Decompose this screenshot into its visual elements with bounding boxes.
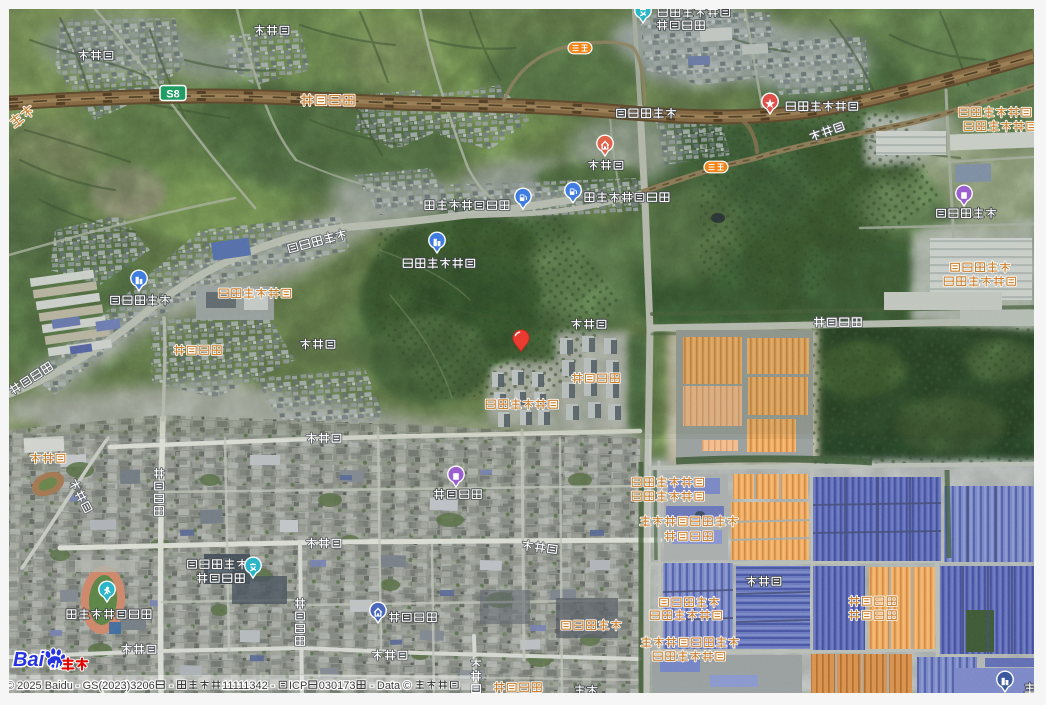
svg-text:- Data ©: - Data © (367, 680, 414, 692)
svg-text:ICP: ICP (289, 680, 307, 692)
svg-text:11111342 -: 11111342 - (222, 680, 277, 692)
svg-text:S8: S8 (166, 88, 179, 100)
svg-text:© 2025 Baidu - GS(2023)3206: © 2025 Baidu - GS(2023)3206 (6, 680, 155, 692)
svg-text:-: - (166, 680, 176, 692)
svg-text:030173: 030173 (319, 680, 356, 692)
svg-text:Bai: Bai (13, 649, 45, 671)
